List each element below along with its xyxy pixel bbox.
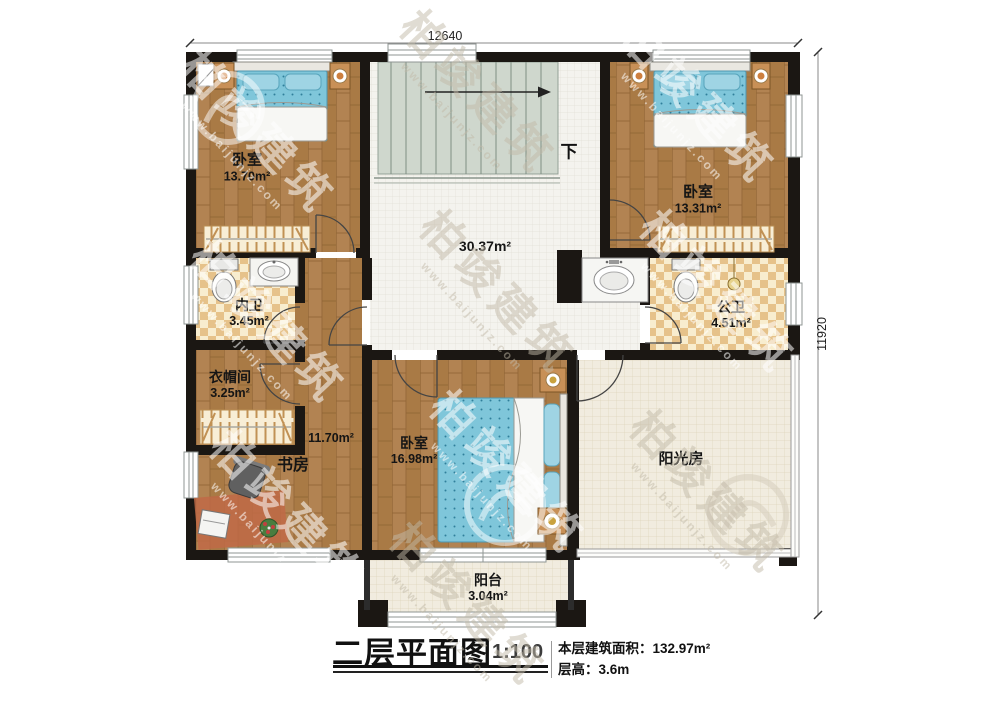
room-label-bedroom-top-right: 卧室 13.31m² <box>675 185 722 216</box>
window <box>786 283 802 325</box>
floor-height-text: 层高：3.6m <box>558 658 629 678</box>
room-label-bedroom-bottom: 卧室 16.98m² <box>391 436 438 466</box>
room-area: 3.45m² <box>229 314 269 328</box>
room-area: 30.37m² <box>459 239 511 255</box>
window <box>184 266 198 324</box>
balcony-railing <box>388 612 556 627</box>
room-label-bath-public: 公卫 4.51m² <box>711 300 751 330</box>
wardrobe-top-left <box>204 226 310 252</box>
room-label-hall-area: 30.37m² <box>459 239 511 255</box>
room-label-study: 书房 <box>277 457 309 475</box>
room-label-balcony: 阳台 3.04m² <box>468 573 508 603</box>
drawing-scale: 1:100 <box>492 641 543 664</box>
dimension-right: 11920 <box>815 317 829 351</box>
vanity-sink <box>582 258 648 302</box>
room-label-bath-inner: 内卫 3.45m² <box>229 298 269 328</box>
room-name: 衣帽间 <box>209 370 251 386</box>
stairs-down-label: 下 <box>561 138 578 163</box>
room-label-cloakroom: 衣帽间 3.25m² <box>209 370 251 400</box>
room-area: 16.98m² <box>391 452 438 466</box>
dimension-top: 12640 <box>428 29 463 43</box>
title-underline <box>333 665 548 668</box>
room-name: 卧室 <box>675 185 722 202</box>
floor-area-text: 本层建筑面积：132.97m² <box>558 637 710 657</box>
room-name: 公卫 <box>711 300 751 316</box>
bay-window <box>388 44 476 62</box>
room-area: 4.51m² <box>711 316 751 330</box>
title-divider <box>551 641 552 678</box>
room-area: 13.31m² <box>675 201 722 215</box>
room-area: 3.04m² <box>468 589 508 603</box>
room-name: 阳台 <box>468 573 508 589</box>
toilet-public <box>672 259 700 302</box>
window <box>228 548 330 562</box>
wardrobe-top-right <box>658 226 774 252</box>
room-label-study-area: 11.70m² <box>308 431 354 445</box>
room-label-bedroom-top-left: 卧室 13.70m² <box>224 153 271 184</box>
window <box>184 452 198 498</box>
room-name: 书房 <box>277 457 309 475</box>
room-area: 11.70m² <box>308 431 354 445</box>
sliding-door <box>420 548 546 562</box>
room-name: 阳光房 <box>658 452 703 469</box>
window <box>786 95 802 157</box>
room-label-sunroom: 阳光房 <box>658 452 703 469</box>
title-underline-2 <box>333 671 548 673</box>
room-area: 13.70m² <box>224 169 271 183</box>
stairs <box>374 62 560 183</box>
room-name: 内卫 <box>229 298 269 314</box>
wardrobe-cloakroom <box>200 410 294 444</box>
room-name: 卧室 <box>224 153 271 170</box>
toilet-inner <box>210 259 238 302</box>
room-area: 3.25m² <box>209 386 251 400</box>
sink-inner <box>250 258 298 286</box>
floorplan-canvas: 卧室 13.70m² 卧室 13.31m² 30.37m² 内卫 3.45m² … <box>0 0 1000 706</box>
room-name: 卧室 <box>391 436 438 452</box>
